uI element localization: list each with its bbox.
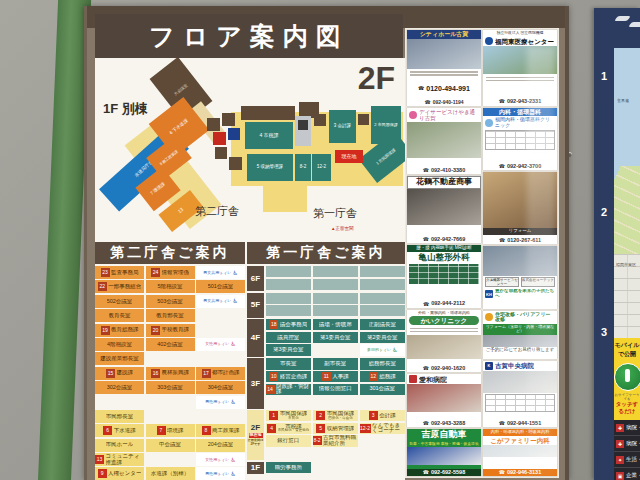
room-cell: 3会計課 [360,410,406,421]
ad-hours-table [485,130,555,150]
phone-icon: ☎ [423,168,429,173]
directory2-row: 市民ホール中会議室204会議室 [95,439,245,452]
directory1-row: 市長室副市長室総務部長室 [266,358,406,369]
ceiling-light-reflection [628,22,640,27]
kiosk-content: 玄界灘 福岡市東区 モバイルで公開 おサイフケータイを タッチするだけ ✚病院・… [614,8,640,480]
ad-fukuoka-naika-junkanki-clinic: 内科・循環器科福岡内科・循環器科クリニック☎092-942-3700 [483,108,557,171]
directory1-row: 4市税課市民税係・資産税係5収納管理課12-2なんでもきくコーナー [266,423,406,434]
empty-room-cell [360,293,406,304]
room-number-badge: 14 [266,385,275,394]
phone-icon: ☎ [423,470,429,475]
ad-koga-family-naika: 内科・循環器内科・呼吸器内科こがファミリー内科☎092-946-3131 [483,429,557,476]
ad-text-band: 腰・膝 内視鏡手術 MRI診断 [407,245,481,252]
toilet-badge: 女性用トイレ♿ [196,453,245,466]
empty-gap [266,448,312,459]
ceiling-light-reflection [614,16,631,21]
directory1-row: 18議会事務局議場・傍聴席正副議長室 [266,319,406,330]
empty-gap [146,453,195,466]
room-cell: 2市民国保課国保係・年金係 [313,410,359,421]
ad-dayservice-keyaki-dori-koga: デイサービスけやき通り古賀☎092-410-3380 [407,108,481,175]
phone-icon: ☎ [499,238,505,243]
room-cell: 議員控室 [266,332,312,343]
ad-phone: ☎092-692-5598 [407,469,481,477]
directory2-table: 23監査事務局24情報管理係男女共用トイレ♿22一部事務組合5階相談室501会議… [95,266,245,480]
label-main-entrance: ▲正面玄関 [331,226,353,231]
fine-print-line [410,71,478,73]
floor-label: 6F [247,266,264,291]
room-cell: 22一部事務組合 [95,280,144,293]
touch-hand-icon [614,363,640,391]
map-annex-label: 1F 別棟 [103,100,148,118]
ad-text-band: 花鶴不動産商事 [407,176,481,189]
ad-hours-table [409,264,479,284]
empty-gap [146,352,195,365]
floor-rows [266,293,406,318]
directory2-row: 15建設課16農林振興課17都市計画課 [95,367,245,380]
empty-gap [196,352,245,365]
ad-phone: ☎092-943-2331 [483,98,557,106]
empty-gap [313,462,359,473]
category-icon: ✦ [616,456,624,464]
directory2-row: 4階相談室402会議室女性用トイレ♿ [95,338,245,351]
strip-dark-top [241,106,295,120]
directory1-row [266,293,406,304]
room-cell: 9人権センター [95,467,144,480]
kiosk-ad-small: おサイフケータイを [614,393,640,401]
floor-label: 3F [247,358,264,408]
label-building1: 第一庁舎 [313,206,357,221]
kiosk-ad-headline: モバイルで公開 [614,338,640,359]
ad-photo [483,246,557,276]
directory1-row: 1市民国保課市民係2市民国保課国保係・年金係3会計課 [266,410,406,421]
ad-koga-chuo-byoin: K古賀中央病院☎092-944-1551 [483,361,557,428]
room-number-badge: 3 [369,411,378,420]
ad-chip-row: 介護機器サービスセンター株式会社コーテック [483,276,557,288]
kiosk-section-number: 3 [594,326,614,338]
kiosk-section-number: 2 [594,206,614,218]
ad-text-band: 亀山整形外科 [407,252,481,263]
ad-logo-title: デイサービスけやき通り古賀 [407,108,481,122]
ad-photo [483,371,557,393]
wheelchair-icon: ♿ [230,341,235,347]
corridor-entrance [263,182,307,212]
category-label: 生活・サービス [626,456,640,463]
empty-gap [196,410,245,423]
ads-panel: シティホール古賀☎0120-494-991☎092-940-1194デイサービス… [405,28,559,478]
empty-gap [360,396,406,407]
room-number-badge: 5 [316,424,325,433]
directory1-row [266,305,406,316]
empty-room-cell [266,305,312,316]
empty-room-cell [313,305,359,316]
room-cell: 5収納管理課 [313,423,359,434]
ad-kazuru-fudosan-shoji: 花鶴不動産商事☎092-942-7669 [407,176,481,243]
ad-logo-title: 住宅改修・バリアフリー改修 [483,311,557,324]
ad-city-hall-koga: シティホール古賀☎0120-494-991☎092-940-1194 [407,30,481,106]
ad-barrier-free-reform: 住宅改修・バリアフリー改修リフォーム（水回り・内装・増改築など）ご予約に応じてお… [483,311,557,359]
ad-yoshihara-jidosha: 吉原自動車新車・中古車販売 車検・整備・鈑金塗装☎092-692-5598 [407,429,481,476]
ad-photo [407,39,481,69]
kiosk-section-number: 1 [594,70,614,82]
core-dark-2 [222,113,235,126]
directory2-row: 9人権センター水道課（別棟）男性用トイレ♿ [95,467,245,480]
directory2-row: 23監査事務局24情報管理係男女共用トイレ♿ [95,266,245,279]
empty-gap [146,396,195,409]
ad-phone: ☎0120-494-991 [407,84,481,93]
floor-block: 6F [247,266,405,291]
ad-fukuoka-higashi-iryo-center: 独立行政法人 国立病院機構福岡東医療センター☎092-943-2331 [483,30,557,106]
room-cell: 1市民国保課市民係 [266,410,312,421]
category-label: 病院・医療 [626,440,640,447]
ad-phone: ☎092-942-3700 [483,163,557,171]
room-cell: 24情報管理係 [146,266,195,279]
kiosk-number-column: 123 [594,8,614,480]
room-number-badge: 1 [269,411,278,420]
wheelchair-icon: ♿ [230,471,235,477]
empty-room-cell [313,279,359,290]
room-cell: 市民ホール [95,439,144,452]
ad-cortech: 介護機器サービスセンター株式会社コーテックKH豊かな自然を未来の子供たちへ [483,246,557,309]
fine-print-line [410,74,478,76]
fine-print-line [410,328,478,330]
room-number-badge: 10 [269,372,278,381]
directory2-row: 6下水道課7環境課8商工政策課 [95,424,245,437]
stair-dark2 [358,114,369,125]
room-number-badge: 4 [267,424,276,433]
room-cell: 教育部長室 [146,309,195,322]
board-title-text: フロア案内図 [149,20,349,53]
empty-gap [313,344,359,355]
category-icon: ▣ [616,472,624,480]
room-cell: 議場・傍聴席 [313,319,359,330]
room-cell: 204会議室 [196,439,245,452]
room-number-badge: 2 [316,411,325,420]
ads-column-right: 独立行政法人 国立病院機構福岡東医療センター☎092-943-2331内科・循環… [483,30,557,476]
room-number-badge: 15 [106,369,115,378]
phone-icon: ☎ [423,366,429,371]
directory1-table: 6F5F4F18議会事務局議場・傍聴席正副議長室議員控室第1委員会室第2委員会室… [247,266,405,476]
ad-text-band: リフォーム（水回り・内装・増改築など） [483,324,557,335]
category-icon: ✚ [616,424,624,432]
room-cell: 304会議室 [196,381,245,394]
room-cell: 402会議室 [146,338,195,351]
directory2-row: 502会議室503会議室男女共用トイレ♿ [95,295,245,308]
ad-logo-title: 愛和病院 [407,374,481,384]
room-number-badge: 7 [157,426,166,435]
directory1-row: 14財政課・管財課情報公開窓口301会議室 [266,384,406,395]
phone-icon: ☎ [423,302,429,307]
ad-reform-interior: リフォーム☎0120-267-611 [483,172,557,244]
room-cell: 302会議室 [95,381,144,394]
kiosk-ad-touch-label: タッチするだけ [614,401,640,415]
room-cell: 303会議室 [146,381,195,394]
room-cell: 4市税課市民税係・資産税係 [266,423,312,434]
floor-map: 2F 1F 別棟 水道局庁舎大会議室6 下水道課8 商工政策課7 環境課134 … [95,58,405,240]
directory2-row: 19教育総務課20学校教育課 [95,324,245,337]
ad-hours-table [485,394,555,412]
room-cell: 情報公開窓口 [313,384,359,395]
room-cell: 301会議室 [360,384,406,395]
toilet-badge: 男性用トイレ♿ [196,467,245,480]
ad-logo-title: KH豊かな自然を未来の子供たちへ [483,288,557,300]
directory2-row: 市民部長室 [95,410,245,423]
floor-block: 2F現在地正面玄関は2Fです1市民国保課市民係2市民国保課国保係・年金係3会計課… [247,410,405,460]
floor-guide-board: フロア案内図 2F 1F 別棟 水道局庁舎大会議室6 下水道課8 商工政策課7 … [84,6,569,480]
label-building2: 第二庁舎 [195,204,239,219]
room-cell: 11人事課 [313,371,359,382]
ad-phone: ☎092-944-1551 [483,420,557,428]
fine-print-line [486,77,554,79]
ad-logo-title: 福岡東医療センター [483,36,557,46]
floor-label: 4F [247,319,264,357]
room-cell: 12-2なんでもきくコーナー [360,423,406,434]
ad-photo [407,447,481,465]
room-cell: 第1委員会室 [313,332,359,343]
floor-label: 1F [247,462,264,475]
category-label: 企業・事務所 [626,472,640,479]
room-cell: 総務部長室 [360,358,406,369]
empty-room-cell [266,266,312,277]
ad-chip: 介護機器サービスセンター [485,277,519,287]
ad-fine-print [407,325,481,335]
ad-photo [483,445,557,457]
directory1-row: 10経営企画課11人事課12総務課 [266,371,406,382]
room-number-badge: 18 [269,320,278,329]
room-number-badge: 12 [369,372,378,381]
category-icon: ✚ [616,440,624,448]
room-number-badge: 17 [202,369,211,378]
ad-phone: ☎092-940-1194 [407,99,481,106]
empty-room-cell [266,293,312,304]
room-cell: 18議会事務局 [266,319,312,330]
empty-gap [95,396,144,409]
room-number-badge: 23 [101,268,110,277]
directory1-row [266,279,406,290]
room-number-badge: 12-2 [360,424,371,433]
floor-rows [266,266,406,291]
room-cell: 職労事務所 [266,462,312,473]
ad-logo-icon [485,119,493,127]
floor-label: 5F [247,293,264,318]
room-cell: 正副議長室 [360,319,406,330]
room-cell: 19教育総務課 [95,324,144,337]
sea-label: 玄界灘 [617,98,629,103]
room-cell: 17都市計画課 [196,367,245,380]
room-cell: 12総務課 [360,371,406,382]
directory1-row [266,396,406,407]
kiosk-category-list: ✚病院・医療✚病院・医療✦生活・サービス▣企業・事務所 [614,420,640,480]
ad-fine-print [483,74,557,84]
room-number-badge: 8 [202,426,211,435]
map-kiosk-panel: 123 玄界灘 福岡市東区 モバイルで公開 おサイフケータイを タッチするだけ … [594,8,640,480]
ad-logo-title: 福岡内科・循環器科クリニック [483,116,557,129]
directory1-row: 第3委員会室多目的トイレ♿ [266,344,406,355]
directory2-header: 第二庁舎ご案内 [95,242,245,264]
floor-label: 2F現在地正面玄関は2Fです [247,410,264,460]
empty-gap [360,448,406,459]
ad-logo-icon [485,313,493,321]
room-cell: 13コミュニティ推進課 [95,453,144,466]
room-cell: 10経営企画課 [266,371,312,382]
room-cell: 市長室 [266,358,312,369]
floor-block: 5F [247,293,405,318]
empty-room-cell [360,305,406,316]
floor-rows: 職労事務所 [266,462,406,475]
phone-icon: ☎ [499,421,505,426]
toilet-badge: 女性用トイレ♿ [196,338,245,351]
room-cell: 8-2古賀市無料職業紹介所 [313,435,359,446]
room-number-badge: 13 [95,455,104,464]
room-3-kaikei: 3 会計課 [329,110,356,143]
empty-gap [360,435,406,446]
photo-scene: フロア案内図 2F 1F 別棟 水道局庁舎大会議室6 下水道課8 商工政策課7 … [0,0,640,480]
phone-icon: ☎ [499,99,505,104]
room-cell: 7環境課 [146,424,195,437]
directory1-row: 議員控室第1委員会室第2委員会室 [266,332,406,343]
room-cell: 副市長室 [313,358,359,369]
toilet-badge: 多目的トイレ♿ [360,344,406,355]
empty-gap [146,410,195,423]
room-number-badge: 9 [98,469,107,478]
directory2-row: 13コミュニティ推進課女性用トイレ♿ [95,453,245,466]
core-blue [228,128,240,140]
ad-chip: 株式会社コーテック [521,277,555,287]
toilet-badge: 男女共用トイレ♿ [196,295,245,308]
room-cell: 4階相談室 [95,338,144,351]
ad-phone: ☎092-942-7669 [407,236,481,244]
directory1-header: 第一庁舎ご案内 [247,242,405,264]
empty-room-cell [313,293,359,304]
ad-phone: ☎092-943-3288 [407,420,481,428]
room-number-badge: 22 [98,282,107,291]
kiosk-touch-ad: モバイルで公開 おサイフケータイを タッチするだけ [614,338,640,420]
directory1-row [266,448,406,459]
room-number-badge: 19 [101,326,110,335]
empty-gap [196,309,245,322]
ad-photo [407,384,481,412]
room-12-2: 12-2 [312,154,331,181]
ad-text-band: 吉原自動車 [407,429,481,441]
ad-fine-print [407,69,481,79]
directory1-row: 職労事務所 [266,462,406,473]
ad-logo-title: K古賀中央病院 [483,361,557,371]
kiosk-category-row: ✚病院・医療 [614,420,640,436]
ad-photo [407,335,481,359]
empty-room-cell [360,266,406,277]
room-cell: 第2委員会室 [360,332,406,343]
toilet-badge: 男女共用トイレ♿ [196,266,245,279]
empty-room-cell [313,266,359,277]
room-cell: 教育長室 [95,309,144,322]
ad-phone: ☎092-944-2112 [407,300,481,308]
wheelchair-icon: ♿ [230,457,235,463]
room-cell: 銀行窓口 [266,435,312,446]
ad-phone: ☎092-940-1620 [407,365,481,373]
room-cell: 15建設課 [95,367,144,380]
fine-print-line [486,80,554,82]
kiosk-category-row: ▣企業・事務所 [614,468,640,480]
ad-text-band: 内科・循環器内科・呼吸器内科 [483,429,557,436]
phone-icon: ☎ [499,470,505,475]
room-cell: 14財政課・管財課 [266,384,312,395]
room-number-badge: 11 [322,372,331,381]
ad-text-band: かいクリニック [409,316,479,325]
current-location-marker: 現在地 [335,150,363,163]
ad-logo-icon: K [485,362,493,370]
empty-gap [360,462,406,473]
floor-rows: 18議会事務局議場・傍聴席正副議長室議員控室第1委員会室第2委員会室第3委員会室… [266,319,406,357]
phone-icon: ☎ [499,164,505,169]
directory2-row: 22一部事務組合5階相談室501会議室 [95,280,245,293]
room-cell: 中会議室 [146,439,195,452]
room-cell: 建設産業部長室 [95,352,144,365]
area-label: 福岡市東区 [616,262,636,267]
ad-logo-icon [409,111,417,119]
phone-icon: ☎ [424,100,430,105]
room-number-badge: 8-2 [313,436,322,445]
kiosk-map-land [614,166,640,254]
ads-column-left: シティホール古賀☎0120-494-991☎092-940-1194デイサービス… [407,30,481,476]
room-cell: 502会議室 [95,295,144,308]
room-4-shizei: 4 市税課 [245,122,293,149]
room-cell: 20学校教育課 [146,324,195,337]
toilet-badge: 男性用トイレ♿ [196,396,245,409]
floor-block: 3F市長室副市長室総務部長室10経営企画課11人事課12総務課14財政課・管財課… [247,358,405,408]
wheelchair-icon: ♿ [392,347,397,353]
empty-gap [196,324,245,337]
empty-room-cell [266,279,312,290]
directory1-row: 銀行窓口8-2古賀市無料職業紹介所 [266,435,406,446]
floor-block: 1F職労事務所 [247,462,405,475]
wheelchair-icon: ♿ [232,270,237,276]
map-floor-label: 2F [358,60,395,97]
ad-kai-clinic: 外科・胃腸内科・循環器内科かいクリニック☎092-940-1620 [407,310,481,373]
core-dark-4 [229,157,242,170]
ad-photo [407,189,481,225]
room-cell: 市民部長室 [95,410,144,423]
ad-kameyama-seikei-geka: 腰・膝 内視鏡手術 MRI診断亀山整形外科☎092-944-2112 [407,245,481,308]
directory2-row: 建設産業部長室 [95,352,245,365]
stair-dark [314,114,326,126]
ad-photo [407,122,481,158]
room-number-badge: 24 [151,268,160,277]
room-cell: 8商工政策課 [196,424,245,437]
directory2-row: 教育長室教育部長室 [95,309,245,322]
floor-rows: 市長室副市長室総務部長室10経営企画課11人事課12総務課14財政課・管財課情報… [266,358,406,408]
ad-text-band: ご予約に応じてお見積り致します [483,347,557,354]
room-cell: 5階相談室 [146,280,195,293]
room-cell: 23監査事務局 [95,266,144,279]
kiosk-category-row: ✚病院・医療 [614,436,640,452]
room-number-badge: 16 [151,369,160,378]
room-cell: 第3委員会室 [266,344,312,355]
ad-logo-icon [485,37,493,45]
ad-phone: ☎092-410-3380 [407,167,481,175]
phone-icon: ☎ [423,237,429,242]
directory2-row: 302会議室303会議室304会議室 [95,381,245,394]
room-cell: 503会議室 [146,295,195,308]
core-dark-1 [207,118,220,131]
room-cell: 水道課（別棟） [146,467,195,480]
empty-gap [313,396,359,407]
phone-icon: ☎ [423,421,429,426]
phone-icon: ☎ [418,86,424,91]
board-title: フロア案内図 [95,14,403,58]
room-cell: 501会議室 [196,280,245,293]
empty-gap [313,448,359,459]
ad-aiwa-byoin: 愛和病院☎092-943-3288 [407,374,481,427]
core-dark-3 [215,147,227,159]
